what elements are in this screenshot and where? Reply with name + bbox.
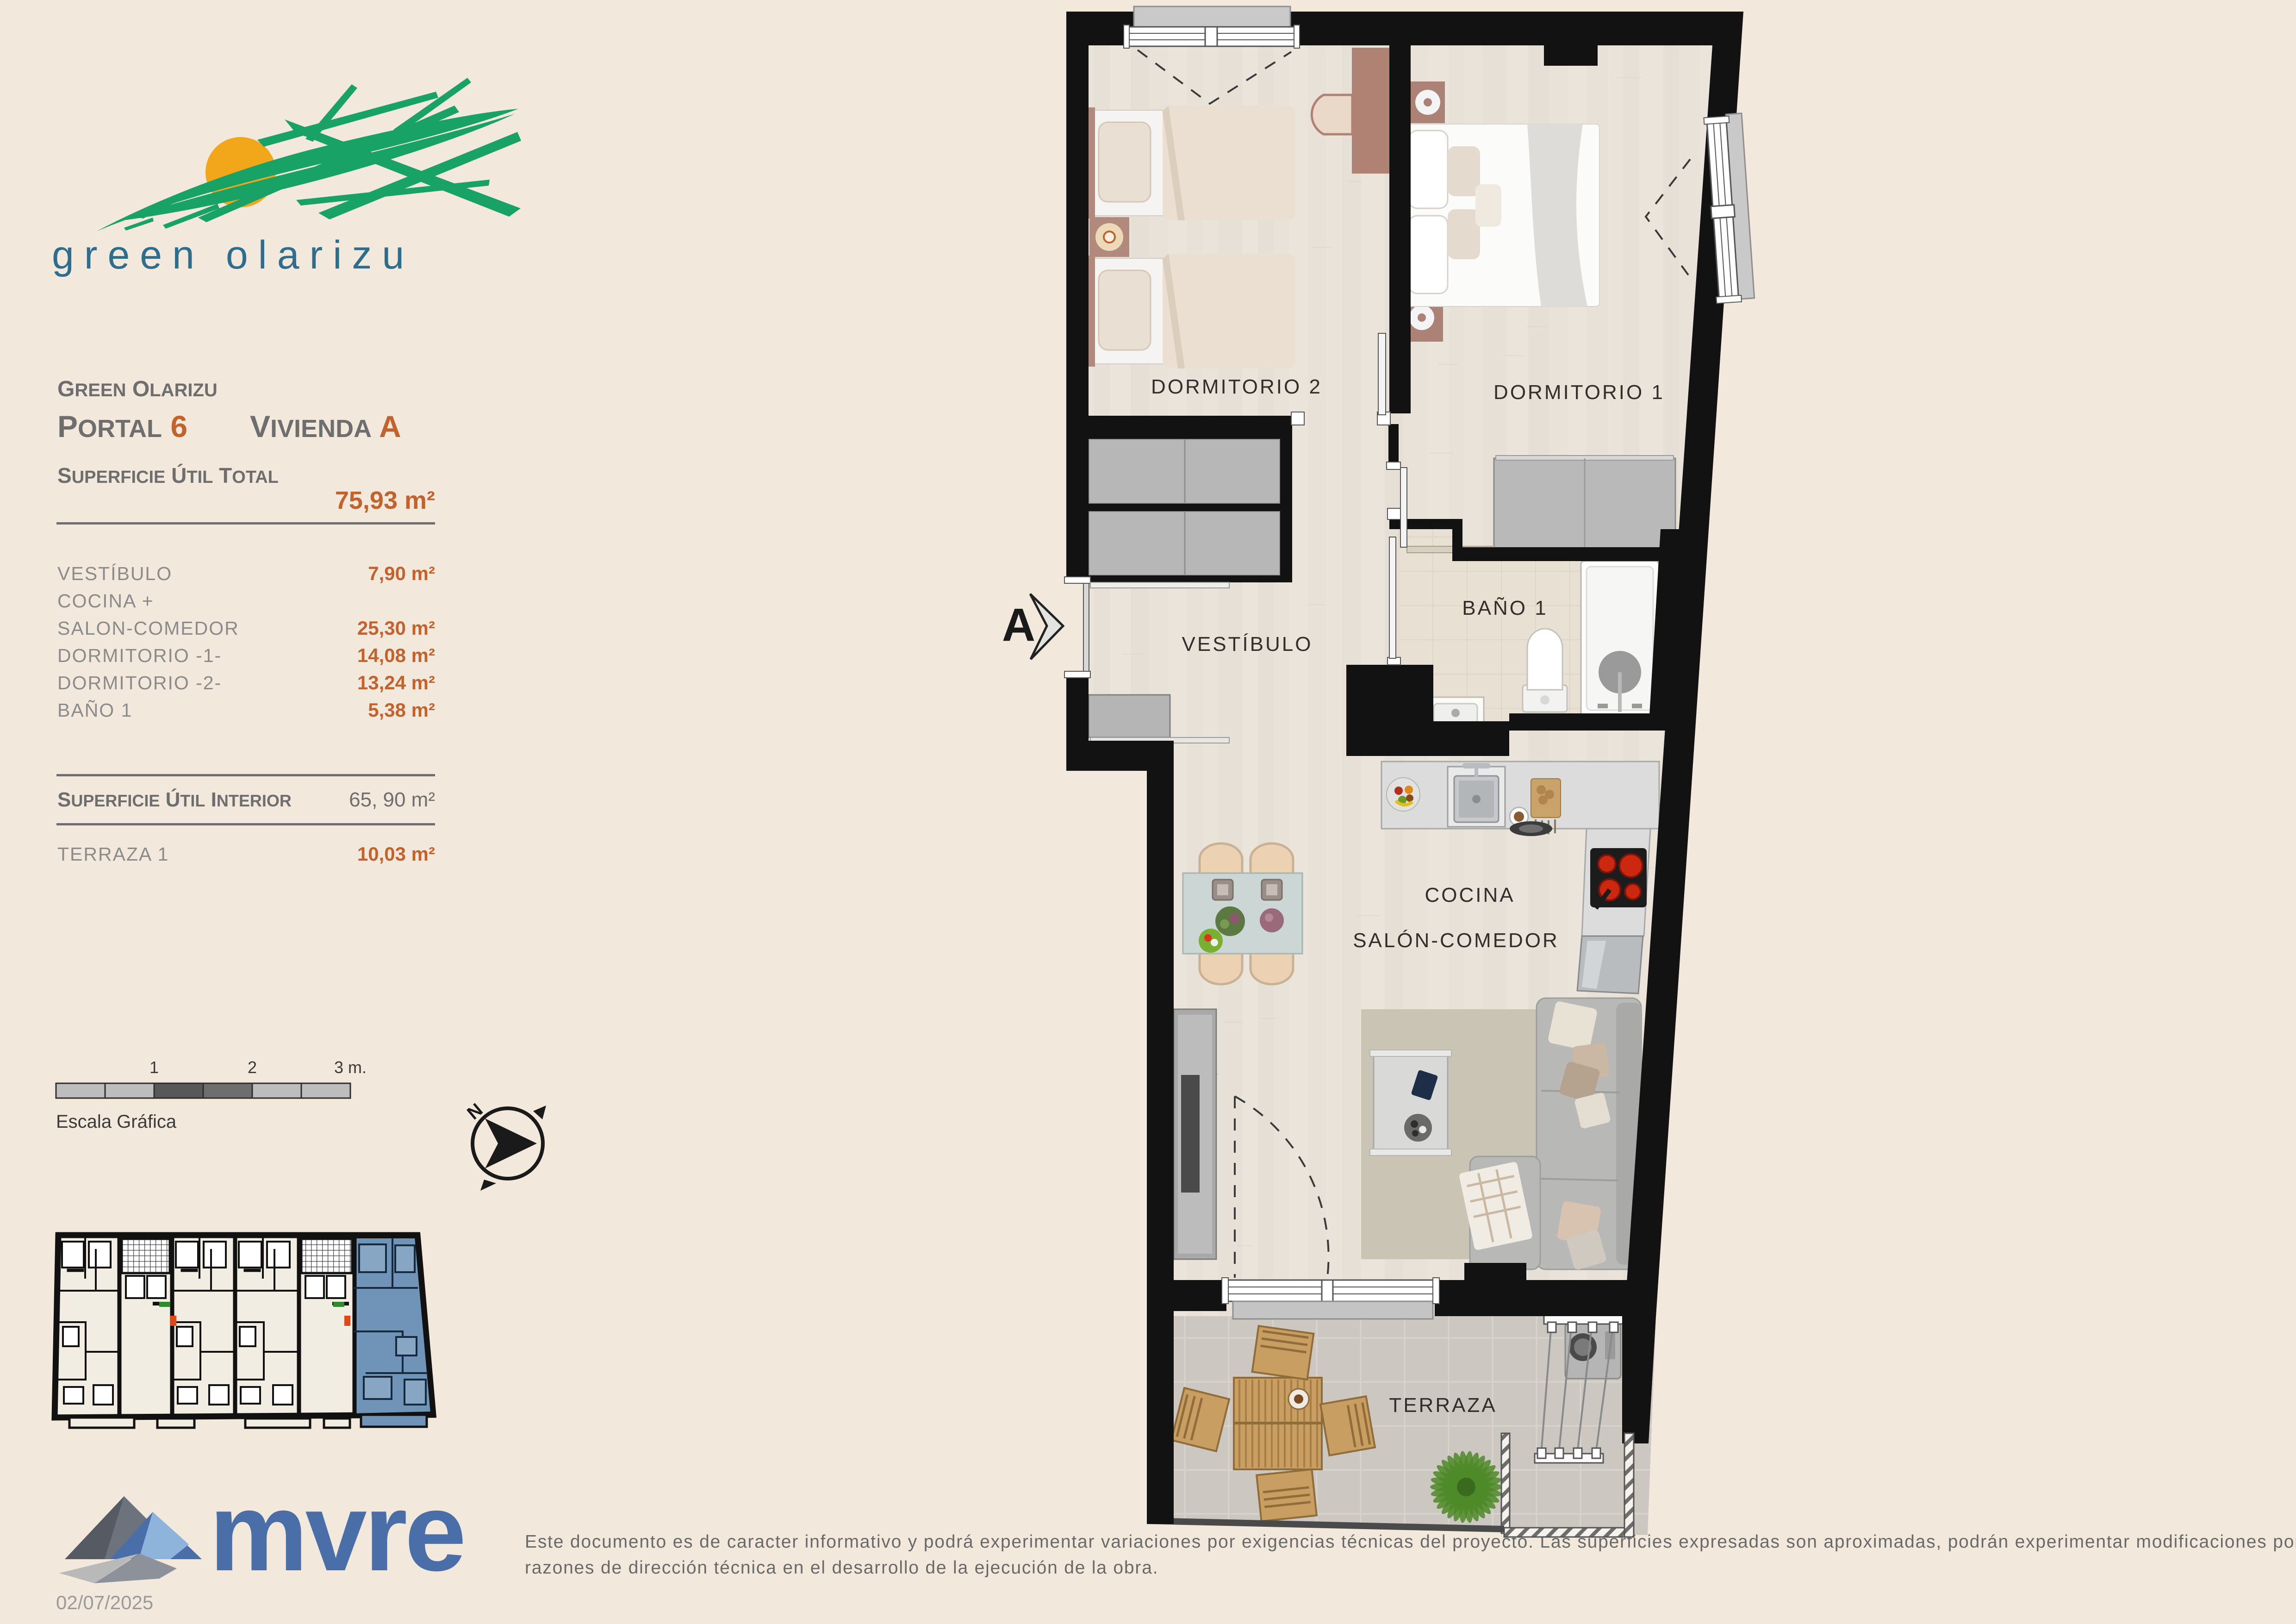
svg-text:Este documento es de caracter: Este documento es de caracter informativ… bbox=[525, 1532, 2296, 1552]
svg-text:75,93 m²: 75,93 m² bbox=[335, 487, 435, 514]
svg-text:GREEN OLARIZU: GREEN OLARIZU bbox=[57, 377, 218, 401]
svg-text:02/07/2025: 02/07/2025 bbox=[56, 1592, 153, 1613]
svg-text:VIVIENDA A: VIVIENDA A bbox=[250, 409, 401, 443]
svg-text:TERRAZA 1: TERRAZA 1 bbox=[57, 843, 169, 865]
svg-text:COCINA: COCINA bbox=[1425, 884, 1515, 906]
svg-text:5,38 m²: 5,38 m² bbox=[368, 699, 435, 721]
svg-text:1: 1 bbox=[149, 1058, 159, 1077]
svg-text:BAÑO 1: BAÑO 1 bbox=[1462, 596, 1548, 619]
svg-text:SALÓN-COMEDOR: SALÓN-COMEDOR bbox=[1353, 929, 1559, 952]
svg-text:PORTAL 6: PORTAL 6 bbox=[57, 409, 187, 443]
svg-text:2: 2 bbox=[248, 1058, 257, 1077]
svg-text:DORMITORIO 1: DORMITORIO 1 bbox=[1493, 381, 1665, 404]
svg-text:3 m.: 3 m. bbox=[334, 1058, 367, 1077]
svg-text:green olarizu: green olarizu bbox=[52, 233, 414, 277]
svg-text:BAÑO 1: BAÑO 1 bbox=[57, 700, 132, 721]
svg-text:VESTÍBULO: VESTÍBULO bbox=[57, 563, 172, 584]
svg-text:DORMITORIO -1-: DORMITORIO -1- bbox=[57, 645, 222, 666]
svg-text:10,03 m²: 10,03 m² bbox=[357, 843, 435, 865]
svg-text:COCINA +: COCINA + bbox=[57, 590, 154, 612]
svg-text:razones de dirección técnica e: razones de dirección técnica en el desar… bbox=[525, 1558, 1158, 1578]
svg-text:A: A bbox=[1002, 599, 1035, 651]
svg-text:DORMITORIO 2: DORMITORIO 2 bbox=[1151, 375, 1322, 398]
svg-text:65, 90 m²: 65, 90 m² bbox=[349, 788, 435, 811]
svg-text:7,90 m²: 7,90 m² bbox=[368, 562, 435, 584]
svg-text:VESTÍBULO: VESTÍBULO bbox=[1182, 633, 1313, 656]
svg-text:DORMITORIO -2-: DORMITORIO -2- bbox=[57, 672, 222, 693]
svg-text:TERRAZA: TERRAZA bbox=[1389, 1394, 1497, 1417]
svg-text:mvre: mvre bbox=[209, 1470, 464, 1594]
svg-text:SUPERFICIE ÚTIL INTERIOR: SUPERFICIE ÚTIL INTERIOR bbox=[57, 788, 292, 811]
svg-text:14,08 m²: 14,08 m² bbox=[357, 644, 435, 666]
svg-text:25,30 m²: 25,30 m² bbox=[357, 617, 435, 639]
svg-text:Escala Gráfica: Escala Gráfica bbox=[56, 1112, 177, 1132]
svg-text:13,24 m²: 13,24 m² bbox=[357, 672, 435, 693]
svg-text:SALON-COMEDOR: SALON-COMEDOR bbox=[57, 618, 239, 639]
